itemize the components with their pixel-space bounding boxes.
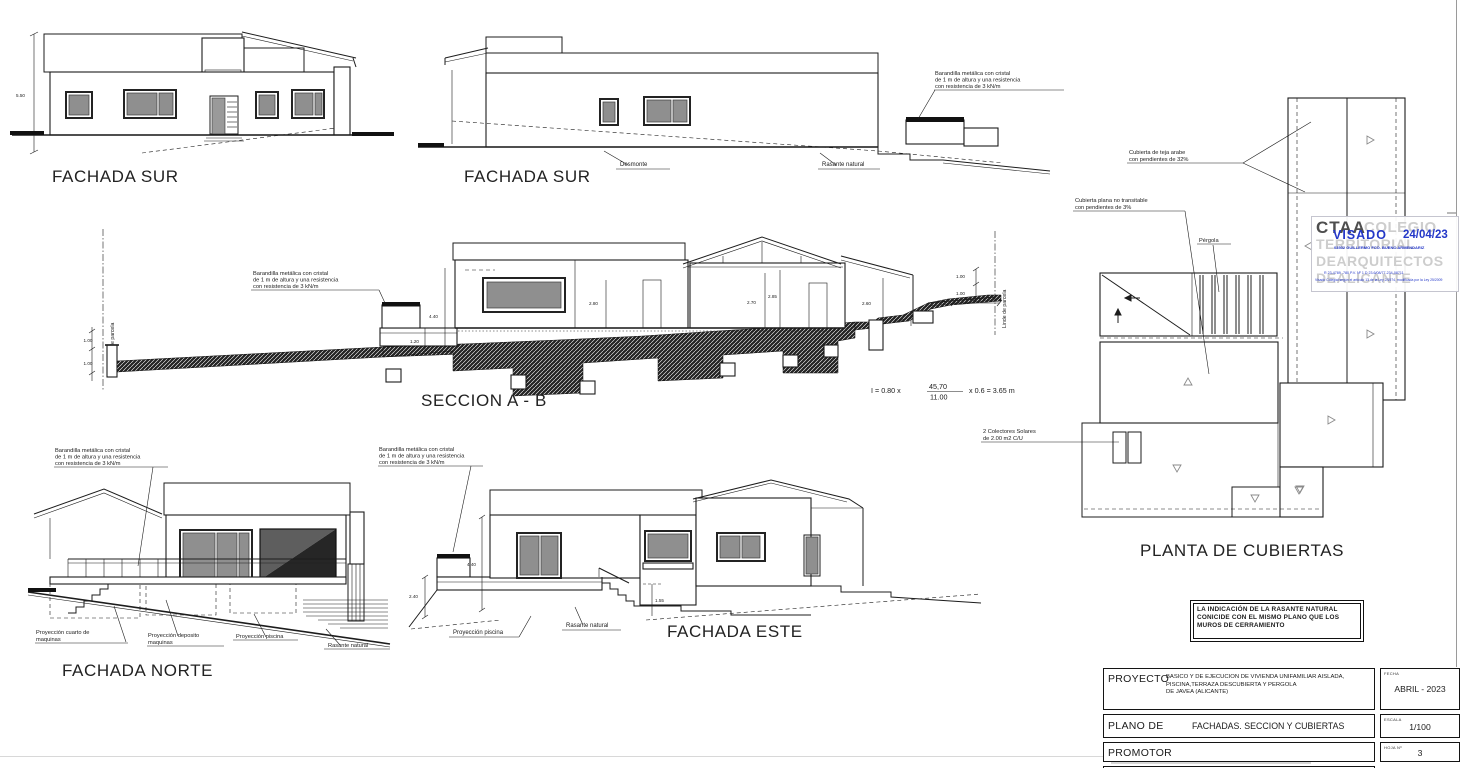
stamp-watermark: DEARQUITECTOS [1316,253,1444,269]
proyecto-desc: BASICO Y DE EJECUCION DE VIVIENDA UNIFAM… [1166,674,1344,682]
svg-text:11.00: 11.00 [930,393,947,402]
title-block: PROYECTO BASICO Y DE EJECUCION DE VIVIEN… [1103,667,1461,768]
svg-text:Rasante natural: Rasante natural [328,643,368,649]
label-proyeccion-piscina: Proyección piscina [449,616,531,637]
svg-text:Barandilla metálica con crista: Barandilla metálica con cristal [55,448,130,454]
titleblock-promotor-cell: PROMOTOR [1103,742,1375,762]
drawing-title: FACHADA SUR [52,167,179,186]
svg-text:de 2.00 m2 C/U: de 2.00 m2 C/U [983,436,1023,442]
drawing-title: PLANTA DE CUBIERTAS [1140,541,1344,560]
sheet-border-right [1456,0,1457,768]
svg-text:I = 0.80 x: I = 0.80 x [871,386,901,395]
svg-text:1.20: 1.20 [410,339,419,344]
section-a-b: Linde de parcela 1.00 1.00 2.80 2.70 [83,223,1063,423]
roof-tiles [164,483,350,515]
gable-roof [34,489,162,514]
hoja-value: 3 [1381,748,1459,758]
svg-text:1.55: 1.55 [655,598,664,603]
svg-text:Barandilla metálica con crista: Barandilla metálica con cristal [935,71,1010,77]
visado-stamp: CTAA COLEGIO TERRITORIAL DEARQUITECTOS D… [1311,216,1459,292]
svg-text:Pérgola: Pérgola [1199,238,1219,244]
svg-text:4.40: 4.40 [429,314,438,319]
slope-marker [1251,495,1259,502]
titleblock-fecha-cell: FECHA ABRIL - 2023 [1380,668,1460,710]
drawing-sheet: 5.50 FACHADA SUR Barandilla metálica con… [0,0,1463,768]
svg-text:1.00: 1.00 [84,361,93,366]
visado-colegiado: 03502 GUILLERMO FCO. BUENO ARMENDARIZ [1334,245,1424,250]
svg-text:Cubierta de teja arabe: Cubierta de teja arabe [1129,150,1185,156]
svg-text:2.80: 2.80 [589,301,598,306]
terrace-railing [382,305,420,328]
roof-tiles [453,243,685,260]
flat-roof-plan [1100,342,1278,423]
sheet-border-bottom [0,756,1103,757]
drawing-title: FACHADA SUR [464,167,591,186]
pergola-plan [1100,273,1277,336]
fecha-label: FECHA [1384,671,1399,676]
svg-text:45,70: 45,70 [929,382,947,391]
svg-text:Rasante natural: Rasante natural [566,623,608,629]
svg-text:de 1 m de altura y una resiste: de 1 m de altura y una resistencia [935,78,1021,84]
svg-text:de 1 m de altura y una resiste: de 1 m de altura y una resistencia [253,278,339,284]
label-proyeccion-piscina: Proyección piscina [233,614,298,640]
elevation-fachada-sur-1: 5.50 FACHADA SUR [4,20,404,195]
label-desmonte: Desmonte [604,151,670,169]
fecha-value: ABRIL - 2023 [1381,684,1459,694]
proyecto-desc: PISCINA,TERRAZA DESCUBIERTA Y PERGOLA [1166,682,1344,690]
roof-plan: 2 Colectores Solares de 2.00 m2 C/U Cubi… [953,86,1463,566]
svg-text:maquinas: maquinas [36,637,61,643]
titleblock-plano-cell: PLANO DE FACHADAS. SECCION Y CUBIERTAS [1103,714,1375,738]
svg-text:Proyección piscina: Proyección piscina [236,634,284,640]
pitched-roof-plan [1280,383,1383,467]
promotor-label: PROMOTOR [1108,747,1172,759]
plano-label: PLANO DE [1108,720,1164,732]
svg-text:4.40: 4.40 [467,562,476,567]
svg-text:2.85: 2.85 [768,294,777,299]
visado-label: VISADO [1333,228,1387,242]
label-cubierta-teja: Cubierta de teja arabe con pendientes de… [1127,122,1311,192]
drawing-title: FACHADA NORTE [62,661,213,680]
label-colectores: 2 Colectores Solares de 2.00 m2 C/U [981,429,1119,442]
note-barandilla: Barandilla metálica con cristal de 1 m d… [378,447,483,552]
note-barandilla: Barandilla metálica con cristal de 1 m d… [54,448,168,566]
titleblock-hoja-cell: HOJA Nº 3 [1380,742,1460,762]
proyecto-label: PROYECTO [1108,673,1169,685]
svg-text:1.00: 1.00 [84,338,93,343]
svg-text:Rasante natural: Rasante natural [822,162,864,168]
svg-text:0.60: 0.60 [895,318,904,323]
svg-text:2.60: 2.60 [862,301,871,306]
elevation-fachada-norte: Barandilla metálica con cristal de 1 m d… [28,438,418,690]
elevation-fachada-este: Barandilla metálica con cristal de 1 m d… [371,436,983,678]
slope-marker [1173,465,1181,472]
drawing-title: SECCION A - B [421,391,547,410]
note-barandilla: Barandilla metálica con cristal de 1 m d… [251,271,385,303]
label-proyeccion-cuarto: Proyección cuarto de maquinas [35,606,128,643]
garage-door [260,529,336,580]
svg-text:Proyección deposito: Proyección deposito [148,633,199,639]
note-line: LA INDICACIÓN DE LA RASANTE NATURAL [1197,606,1357,614]
drawing-title: FACHADA ESTE [667,622,803,641]
visado-date: 24/04/23 [1403,229,1448,241]
svg-text:2.70: 2.70 [747,300,756,305]
svg-text:de 1 m de altura y una resiste: de 1 m de altura y una resistencia [379,454,465,460]
titleblock-escala-cell: ESCALA 1/100 [1380,714,1460,738]
escala-value: 1/100 [1381,722,1459,732]
visado-legal: Visado Colegial según el artículo 13 de … [1315,278,1442,282]
label-rasante-natural: Rasante natural [562,607,621,630]
note-line: CONICIDE CON EL MISMO PLANO QUE LOS [1197,614,1357,622]
print-smudge [1111,762,1311,764]
svg-text:con resistencia de 3 kN/m: con resistencia de 3 kN/m [379,460,445,466]
svg-text:de 1 m de altura y una resiste: de 1 m de altura y una resistencia [55,455,141,461]
svg-text:Proyección piscina: Proyección piscina [453,630,504,636]
label-proyeccion-deposito: Proyección deposito maquinas [147,600,224,646]
svg-text:Barandilla metálica con crista: Barandilla metálica con cristal [253,271,328,277]
svg-text:con resistencia de 3 kN/m: con resistencia de 3 kN/m [55,461,121,467]
roof-tiles [490,490,702,515]
svg-text:con resistencia de 3 kN/m: con resistencia de 3 kN/m [253,284,319,290]
proyecto-desc: DE JAVEA (ALICANTE) [1166,689,1344,697]
svg-text:Cubierta plana no transitable: Cubierta plana no transitable [1075,198,1148,204]
visado-ref: R 23-4789 -780 P.V. Nº 1 D 23.6/08/77-23… [1324,271,1404,275]
svg-text:Proyección cuarto de: Proyección cuarto de [36,630,89,636]
roof-tiles [486,53,878,73]
plano-value: FACHADAS. SECCION Y CUBIERTAS [1192,721,1344,731]
roof-tiles [486,37,562,53]
svg-text:2.40: 2.40 [409,594,418,599]
note-line: MUROS DE CERRAMIENTO [1197,622,1357,630]
note-rasante-box: LA INDICACIÓN DE LA RASANTE NATURAL CONI… [1190,600,1364,642]
dimension-label: 5.50 [16,93,25,98]
svg-text:Barandilla metálica con crista: Barandilla metálica con cristal [379,447,454,453]
svg-text:con pendientes de 32%: con pendientes de 32% [1129,157,1188,163]
terrace-railing [437,558,470,577]
stairs [602,577,642,606]
label-rasante-natural: Rasante natural [818,153,880,169]
projection-piscina-outline [230,584,296,613]
svg-text:2 Colectores Solares: 2 Colectores Solares [983,429,1036,435]
solar-collectors [1113,432,1141,463]
svg-text:maquinas: maquinas [148,640,173,646]
titleblock-proyecto-cell: PROYECTO BASICO Y DE EJECUCION DE VIVIEN… [1103,668,1375,710]
svg-text:con pendientes de 3%: con pendientes de 3% [1075,205,1131,211]
